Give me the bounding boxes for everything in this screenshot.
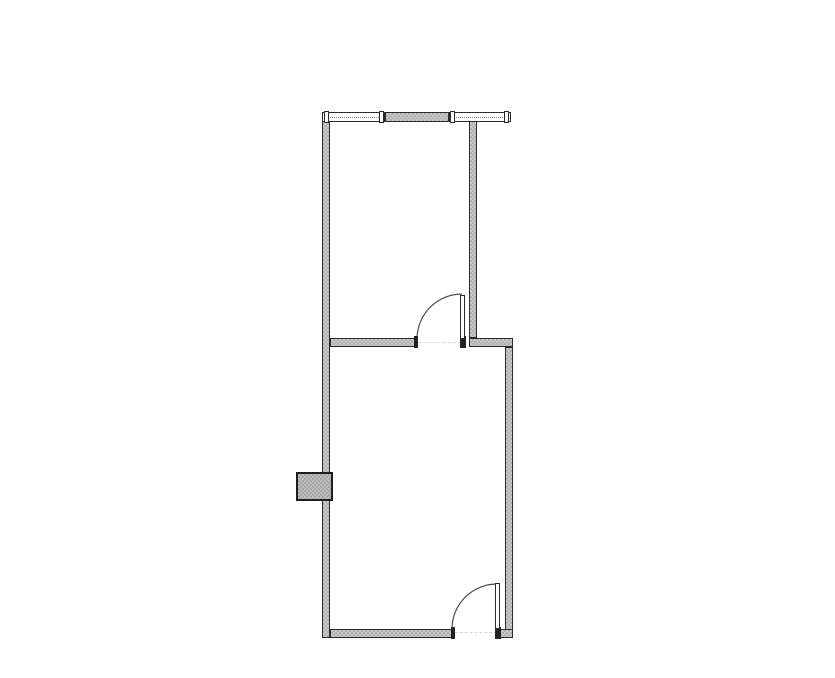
- bottom-door-threshold: [455, 632, 497, 633]
- window-mullion-cap: [450, 111, 455, 123]
- window-mullion-cap: [379, 111, 384, 123]
- middle-door-threshold: [418, 342, 461, 343]
- bottom-door-leaf: [495, 583, 500, 629]
- middle-door-leaf: [460, 295, 465, 339]
- window-mullion-cap: [324, 111, 329, 123]
- middle-door-jamb-left: [414, 336, 418, 348]
- middle-door-swing-arc: [417, 294, 462, 339]
- bottom-door-jamb-left: [451, 627, 455, 639]
- window-mullion-cap: [504, 111, 509, 123]
- bottom-door-swing-arc: [452, 584, 497, 629]
- floorplan-canvas: [0, 0, 835, 678]
- wall-fixture-box: [296, 472, 333, 501]
